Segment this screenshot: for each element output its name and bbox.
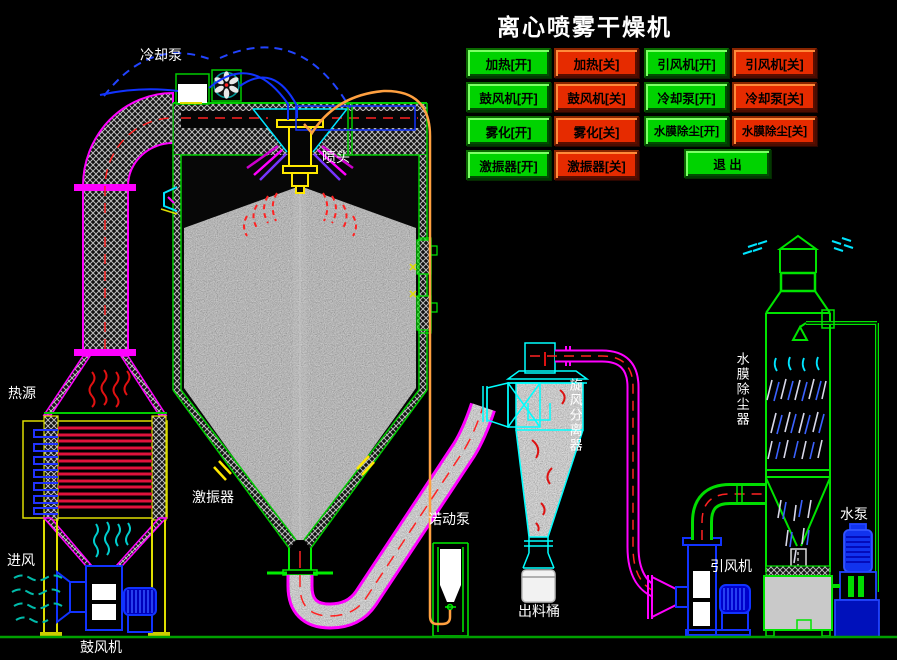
label-cooling-pump: 冷却泵 bbox=[140, 48, 182, 63]
page-title: 离心喷雾干燥机 bbox=[497, 8, 672, 42]
atomizer-off-button[interactable]: 雾化[关] bbox=[554, 116, 639, 146]
label-dust-collector: 水膜除尘器 bbox=[735, 352, 749, 427]
water-pump bbox=[832, 524, 879, 637]
cooling-pump-off-button[interactable]: 冷却泵[关] bbox=[732, 82, 817, 112]
water-film-on-button[interactable]: 水膜除尘[开] bbox=[644, 116, 729, 146]
blower-off-button[interactable]: 鼓风机[关] bbox=[554, 82, 639, 112]
cooling-pump-on-button[interactable]: 冷却泵[开] bbox=[644, 82, 729, 112]
label-heat-source: 热源 bbox=[8, 386, 36, 401]
label-blower: 鼓风机 bbox=[80, 640, 122, 655]
cool-air-waves bbox=[94, 522, 130, 557]
scada-screen: 离心喷雾干燥机 加热[开] 加热[关] 引风机[开] 引风机[关] 鼓风机[开]… bbox=[0, 0, 897, 660]
label-cyclone-separator: 旋风分离器 bbox=[568, 378, 582, 453]
label-water-pump: 水泵 bbox=[840, 507, 868, 522]
heater-elements bbox=[58, 428, 152, 507]
draft-fan-on-button[interactable]: 引风机[开] bbox=[644, 48, 729, 78]
vibrator-off-button[interactable]: 激振器[关] bbox=[554, 150, 639, 180]
vibrator-on-button[interactable]: 激振器[开] bbox=[466, 150, 551, 180]
induced-draft-fan bbox=[676, 538, 750, 635]
label-air-inlet: 进风 bbox=[7, 553, 35, 568]
fan-outlet-duct bbox=[702, 483, 766, 540]
air-inlet-waves bbox=[12, 576, 62, 623]
atomizer-on-button[interactable]: 雾化[开] bbox=[466, 116, 551, 146]
draft-fan-off-button[interactable]: 引风机[关] bbox=[732, 48, 817, 78]
heater-off-button[interactable]: 加热[关] bbox=[554, 48, 639, 78]
heat-waves-up bbox=[90, 370, 130, 407]
label-induced-draft-fan: 引风机 bbox=[710, 559, 752, 574]
blower bbox=[57, 566, 156, 632]
exit-button[interactable]: 退 出 bbox=[684, 149, 771, 178]
exhaust-elbow-duct bbox=[74, 93, 173, 356]
heater-on-button[interactable]: 加热[开] bbox=[466, 48, 551, 78]
blower-on-button[interactable]: 鼓风机[开] bbox=[466, 82, 551, 112]
label-spray-head: 喷头 bbox=[322, 150, 350, 165]
label-feed-pump: 诺动泵 bbox=[428, 512, 470, 527]
label-discharge-barrel: 出料桶 bbox=[518, 604, 560, 619]
label-vibrator: 激振器 bbox=[192, 490, 234, 505]
water-film-off-button[interactable]: 水膜除尘[关] bbox=[732, 116, 817, 146]
tower-sprays bbox=[743, 238, 853, 563]
